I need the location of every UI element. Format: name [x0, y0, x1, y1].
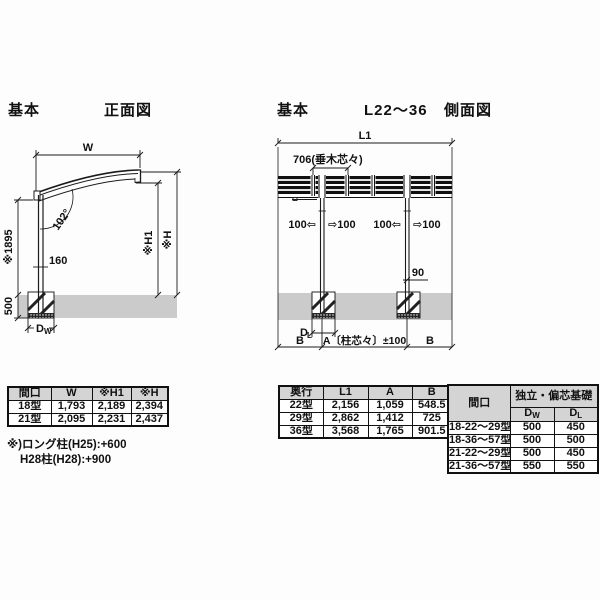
cell-value: 2,095 — [51, 413, 92, 426]
table-row: 29型 2,862 1,412 725 — [279, 412, 452, 425]
front-table-header: W — [51, 387, 92, 400]
cell-value: 2,231 — [92, 413, 131, 426]
d160-label: 160 — [49, 255, 67, 267]
cell-value: 450 — [554, 447, 598, 460]
cell-value: 1,059 — [368, 399, 412, 412]
row-label: 18-22〜29型 — [448, 421, 510, 434]
cell-value: 2,862 — [323, 412, 368, 425]
cell-value: 500 — [510, 421, 554, 434]
side-dimensions-table: 奥行 L1 A B 22型 2,156 1,059 548.5 29型 2,86… — [278, 385, 453, 439]
side-range-label: L22〜36 — [364, 99, 428, 120]
h1-dimension-label: ※H1 — [143, 231, 155, 256]
offset-arrow-label-2: ⇨100 — [328, 219, 356, 231]
row-label: 21-22〜29型 — [448, 447, 510, 460]
ground-band — [278, 293, 452, 320]
cell-value: 500 — [510, 447, 554, 460]
table-row: 18型 1,793 2,189 2,394 — [8, 400, 168, 413]
cell-value: 550 — [510, 460, 554, 473]
row-label: 29型 — [279, 412, 323, 425]
cell-value: 3,568 — [323, 425, 368, 438]
h1895-dimension-label: ※1895 — [3, 229, 15, 264]
d90-label: 90 — [412, 267, 424, 279]
h1895-dimension-lines — [14, 197, 33, 298]
cell-value: 450 — [554, 421, 598, 434]
cell-value: 550 — [554, 460, 598, 473]
front-dimensions-table: 間口 W ※H1 ※H 18型 1,793 2,189 2,394 21型 2,… — [7, 386, 169, 427]
front-table-header: 間口 — [8, 387, 51, 400]
d500-dimension-label: 500 — [3, 297, 15, 315]
long-post-note: ※)ロング柱(H25):+600 — [7, 436, 127, 452]
l1-dimension-label: L1 — [359, 130, 372, 142]
h28-post-note: H28柱(H28):+900 — [20, 451, 111, 467]
cell-value: 901.5 — [412, 425, 452, 438]
foundation-subheader-dw: DW — [510, 407, 554, 421]
side-table-header: L1 — [323, 386, 368, 399]
table-row: 18-22〜29型 500 450 — [448, 421, 598, 434]
side-table-header: 奥行 — [279, 386, 323, 399]
dw-dimension-sub: W — [44, 327, 52, 336]
row-label: 18-36〜57型 — [448, 434, 510, 447]
front-view-title: 正面図 — [104, 99, 152, 120]
foundation-col1-header: 間口 — [448, 385, 510, 421]
side-table-header: A — [368, 386, 412, 399]
w-dimension-label: W — [83, 142, 94, 154]
cell-value: 1,765 — [368, 425, 412, 438]
table-row: 21-36〜57型 550 550 — [448, 460, 598, 473]
table-row: 21型 2,095 2,231 2,437 — [8, 413, 168, 426]
roof-beam — [34, 170, 141, 201]
cell-value: 2,394 — [131, 400, 168, 413]
foundation-table: 間口 独立・偏芯基礎 DW DL 18-22〜29型 500 450 18-36… — [447, 384, 599, 474]
rafter-pitch-lines — [310, 165, 351, 176]
offset-arrow-label-1: 100⇦ — [288, 219, 316, 231]
b-left-label: B — [296, 335, 304, 347]
side-table-header: B — [412, 386, 452, 399]
table-row: 21-22〜29型 500 450 — [448, 447, 598, 460]
cell-value: 2,156 — [323, 399, 368, 412]
offset-arrow-label-3: 100⇦ — [373, 219, 401, 231]
front-foundation — [28, 292, 54, 318]
rafter-pitch-label: 706(垂木芯々) — [293, 152, 363, 166]
row-label: 21-36〜57型 — [448, 460, 510, 473]
roof-structure — [278, 175, 452, 198]
row-label: 36型 — [279, 425, 323, 438]
dw-dimension-label: D — [36, 323, 44, 335]
front-table-header: ※H1 — [92, 387, 131, 400]
row-label: 18型 — [8, 400, 51, 413]
side-section-label: 基本 — [277, 99, 309, 120]
drawing-canvas: 基本 正面図 基本 L22〜36 側面図 W — [0, 0, 600, 600]
cell-value: 1,412 — [368, 412, 412, 425]
offset-arrow-label-4: ⇨100 — [413, 219, 441, 231]
dl-dimension-sub: L — [307, 331, 312, 340]
cell-value: 2,189 — [92, 400, 131, 413]
h-dimension-label: ※H — [162, 231, 174, 250]
row-label: 21型 — [8, 413, 51, 426]
side-view-title: 側面図 — [444, 99, 492, 120]
front-table-header: ※H — [131, 387, 168, 400]
cell-value: 725 — [412, 412, 452, 425]
cell-value: 548.5 — [412, 399, 452, 412]
front-view-drawing: W 102° ※1895 160 — [0, 125, 260, 360]
cell-value: 500 — [510, 434, 554, 447]
table-row: 36型 3,568 1,765 901.5 — [279, 425, 452, 438]
side-view-drawing: L1 706(垂木芯々) — [260, 125, 460, 360]
b-right-label: B — [426, 335, 434, 347]
cell-value: 1,793 — [51, 400, 92, 413]
foundation-group-header: 独立・偏芯基礎 — [510, 385, 598, 407]
row-label: 22型 — [279, 399, 323, 412]
table-row: 18-36〜57型 500 500 — [448, 434, 598, 447]
a-center-label: A〔柱芯々〕±100 — [323, 334, 407, 347]
table-row: 22型 2,156 1,059 548.5 — [279, 399, 452, 412]
cell-value: 500 — [554, 434, 598, 447]
foundation-subheader-dl: DL — [554, 407, 598, 421]
front-section-label: 基本 — [8, 99, 40, 120]
cell-value: 2,437 — [131, 413, 168, 426]
